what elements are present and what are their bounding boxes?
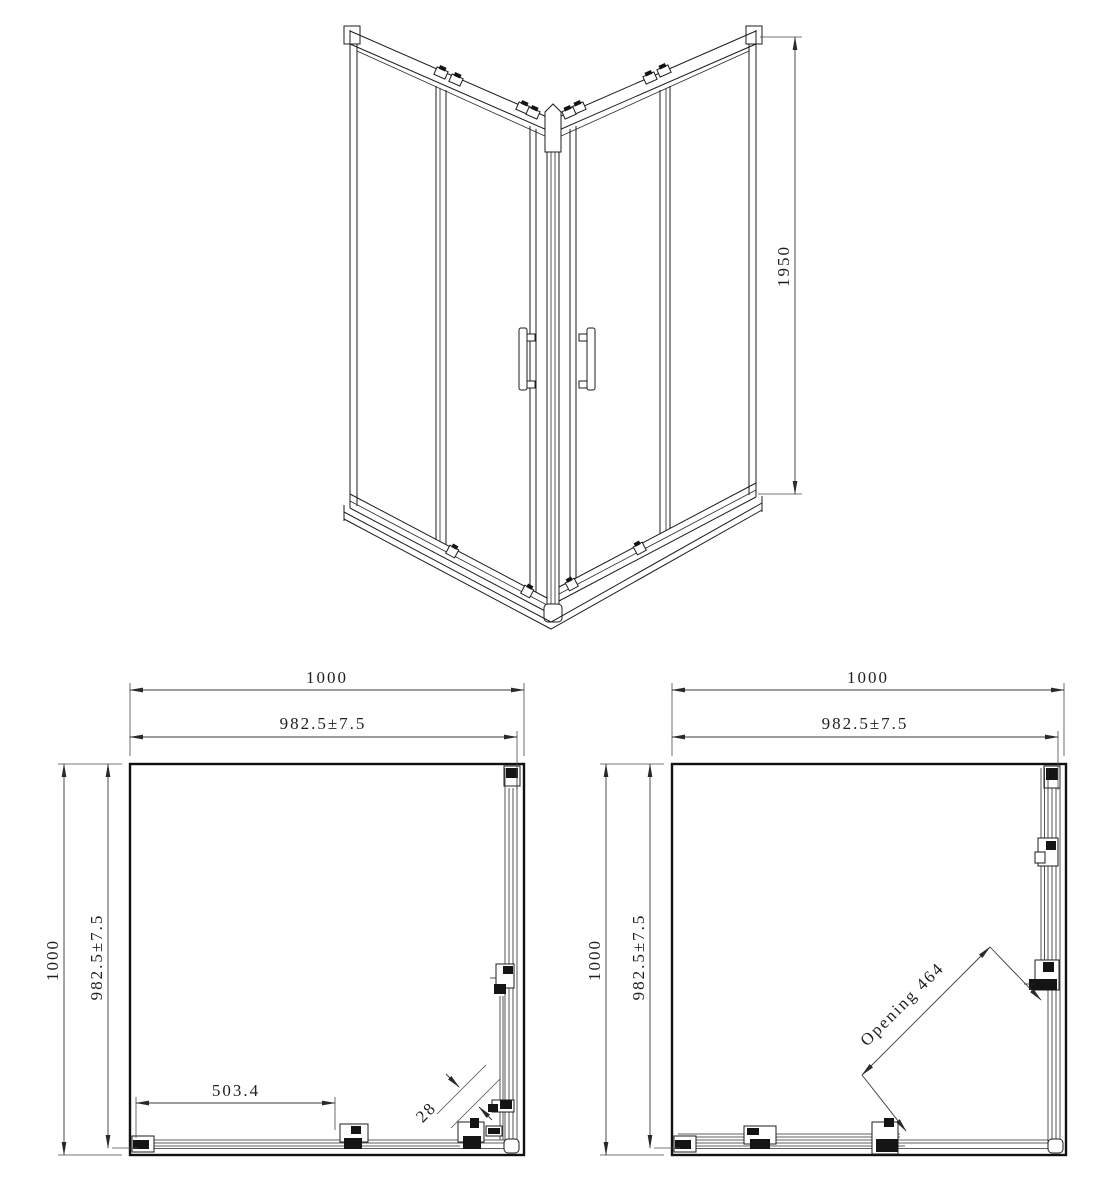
side-panel-track-closed [488, 766, 520, 1142]
front-panel-track-closed [132, 1118, 519, 1153]
side-door-leading-bracket-open [1024, 960, 1059, 990]
front-door-leading-bracket-open [872, 1118, 898, 1154]
tray-corner-piece-closed [504, 1139, 519, 1153]
side-panel-track-open [1024, 766, 1060, 1148]
dim-opening-open-label: Opening 464 [856, 958, 947, 1049]
dim-height-label: 1950 [774, 245, 793, 287]
side-door-bracket-closed [490, 964, 514, 994]
technical-drawing: 1950 [0, 0, 1114, 1200]
dim-opening-open: Opening 464 [856, 947, 1041, 1131]
dim-depth-outer-open-label: 1000 [585, 939, 604, 981]
dim-door-panel-closed-label: 503.4 [212, 1081, 260, 1100]
dim-width-outer-closed-label: 1000 [306, 668, 348, 687]
dim-corner-gap-closed-label: 28 [412, 1098, 440, 1126]
dim-depth-outer-closed: 1000 [43, 764, 122, 1155]
tray-outline-open [672, 764, 1066, 1155]
tray-corner-piece-open [1048, 1139, 1063, 1153]
front-corner-bracket-closed [458, 1118, 519, 1153]
wall-profile-bracket-closed [132, 1136, 154, 1152]
dim-depth-outer-closed-label: 1000 [43, 939, 62, 981]
dim-door-panel-closed: 503.4 [136, 1081, 335, 1138]
corner-post [544, 104, 562, 622]
wall-profile-bracket-open [674, 1136, 696, 1152]
dim-width-outer-open-label: 1000 [847, 668, 889, 687]
side-corner-bracket-closed [488, 1100, 514, 1112]
dim-depth-outer-open: 1000 [585, 764, 664, 1155]
left-wall-top-cap [344, 26, 360, 44]
left-wall-panel [344, 26, 547, 612]
dim-depth-inner-open-label: 982.5±7.5 [629, 914, 648, 1001]
perspective-view: 1950 [344, 26, 802, 629]
right-rail-rollers [561, 62, 671, 119]
dim-width-inner-open: 982.5±7.5 [672, 714, 1058, 790]
left-rail-rollers [434, 64, 541, 119]
right-door-handle [579, 328, 595, 390]
drawing-canvas: 1950 [0, 0, 1114, 1200]
dim-depth-inner-closed-label: 982.5±7.5 [87, 914, 106, 1001]
dim-width-inner-closed: 982.5±7.5 [130, 714, 517, 790]
left-door-handle [519, 328, 535, 390]
dim-width-inner-open-label: 982.5±7.5 [822, 714, 909, 733]
dim-corner-gap-closed: 28 [412, 1065, 500, 1128]
front-roller-bracket-open [744, 1126, 776, 1149]
right-wall-panel [559, 26, 762, 601]
height-dimension: 1950 [758, 37, 802, 494]
front-roller-bracket-closed [340, 1124, 368, 1149]
plan-view-doors-closed: 1000 982.5±7.5 1000 982.5±7.5 503.4 [43, 668, 524, 1155]
side-door-upper-bracket-open [1035, 838, 1058, 866]
corner-post-cap [545, 104, 561, 152]
dim-width-inner-closed-label: 982.5±7.5 [280, 714, 367, 733]
plan-view-doors-open: 1000 982.5±7.5 1000 982.5±7.5 Opening 46… [585, 668, 1066, 1155]
right-wall-top-cap [746, 26, 762, 44]
dim-width-outer-closed: 1000 [130, 668, 524, 756]
dim-width-outer-open: 1000 [672, 668, 1064, 756]
tray-outline-closed [130, 764, 524, 1155]
front-panel-track-open [674, 1118, 1063, 1154]
